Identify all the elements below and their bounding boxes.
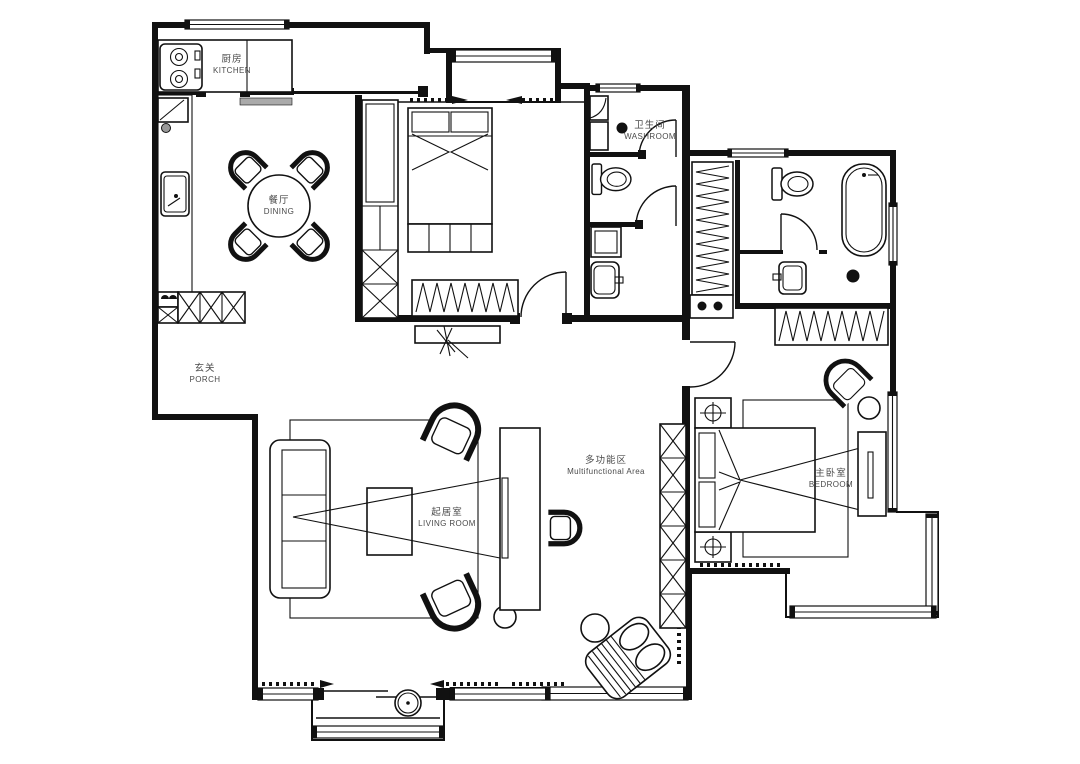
window-balcony-bottom [790,606,936,618]
floor-plan-canvas: 厨房 KITCHEN 餐厅 DINING [0,0,1080,764]
dining-table [248,175,310,237]
kitchen-label-zh: 厨房 [221,53,242,65]
sw-balcony [395,690,421,716]
window-bay [451,50,556,62]
porch-label-zh: 玄关 [194,362,215,374]
bathroom-sink [773,262,806,294]
washroom-sink [591,262,623,298]
door-master-bathroom [781,214,817,250]
door-master-bedroom [690,342,735,387]
door-middle-bedroom [521,272,566,317]
tv-cabinet-living [500,428,540,610]
bed-master [695,428,815,532]
window-balcony-sw [312,726,444,738]
dining-sink [161,172,189,216]
armchair [423,398,486,461]
plant [581,614,609,642]
dining-label-en: DINING [264,207,294,216]
wardrobe-master [775,308,888,345]
bedroom-label-zh: 主卧室 [815,467,847,479]
floor-plan-drawing: 厨房 KITCHEN 餐厅 DINING [0,0,1080,764]
floor-drain-master [847,270,860,283]
room-label-washroom: 卫生间 WASHROOM [624,119,676,141]
shoe-cabinet [158,292,245,323]
tall-cabinet [362,100,398,318]
window-bedroom-side [888,392,897,512]
nightstand [695,398,731,428]
bathtub [842,164,886,256]
console-table [415,326,500,358]
toilet [592,164,631,194]
walkin-closet [690,162,733,318]
sliding-door-balcony [322,691,438,697]
nightstand [695,532,731,562]
window-balcony-right [926,514,938,615]
tv-cabinet-master [858,432,886,516]
living-label-en: LIVING ROOM [418,519,476,528]
kitchen-label-en: KITCHEN [213,66,251,75]
dining-room: 餐厅 DINING [158,95,334,292]
bed-middle [408,108,492,252]
room-label-bedroom: 主卧室 BEDROOM [809,467,853,489]
master-bedroom: 主卧室 BEDROOM [695,308,888,562]
window-living-left [258,688,318,700]
window-washroom [596,84,640,92]
kitchen: 厨房 KITCHEN [158,40,292,92]
washroom-label-zh: 卫生间 [634,119,666,131]
washing-machine [395,690,421,716]
room-label-porch: 玄关 PORCH [190,362,221,384]
stool [858,397,880,419]
bedroom-label-en: BEDROOM [809,480,853,489]
shower-shelf [590,96,608,120]
toilet-master [772,168,813,200]
dining-label-zh: 餐厅 [268,194,289,206]
room-label-multifunctional: 多功能区 Multifunctional Area [567,454,645,476]
desk-chair [548,512,580,544]
multifunctional-label-en: Multifunctional Area [567,467,645,476]
coffee-table [367,488,412,555]
room-label-living: 起居室 LIVING ROOM [418,506,476,528]
living-room: 起居室 LIVING ROOM [270,398,540,637]
corner-counter [158,98,188,122]
sofa [270,440,330,598]
window-bathroom-side [889,203,897,265]
washroom-label-en: WASHROOM [624,132,676,141]
armchair [423,574,486,637]
master-bathroom [690,162,886,318]
porch: 玄关 PORCH [158,292,245,384]
storage-column [660,424,686,628]
window-bathroom [728,149,788,157]
window-kitchen [185,20,289,29]
washroom: 卫生间 WASHROOM [590,96,676,298]
wardrobe-middle [412,280,518,316]
multifunctional-label-zh: 多功能区 [585,454,627,466]
porch-label-en: PORCH [190,375,221,384]
multifunctional-area: 多功能区 Multifunctional Area [548,424,686,703]
living-label-zh: 起居室 [431,506,463,518]
stove [160,44,202,90]
faucet [162,124,171,133]
window-living [450,688,550,700]
